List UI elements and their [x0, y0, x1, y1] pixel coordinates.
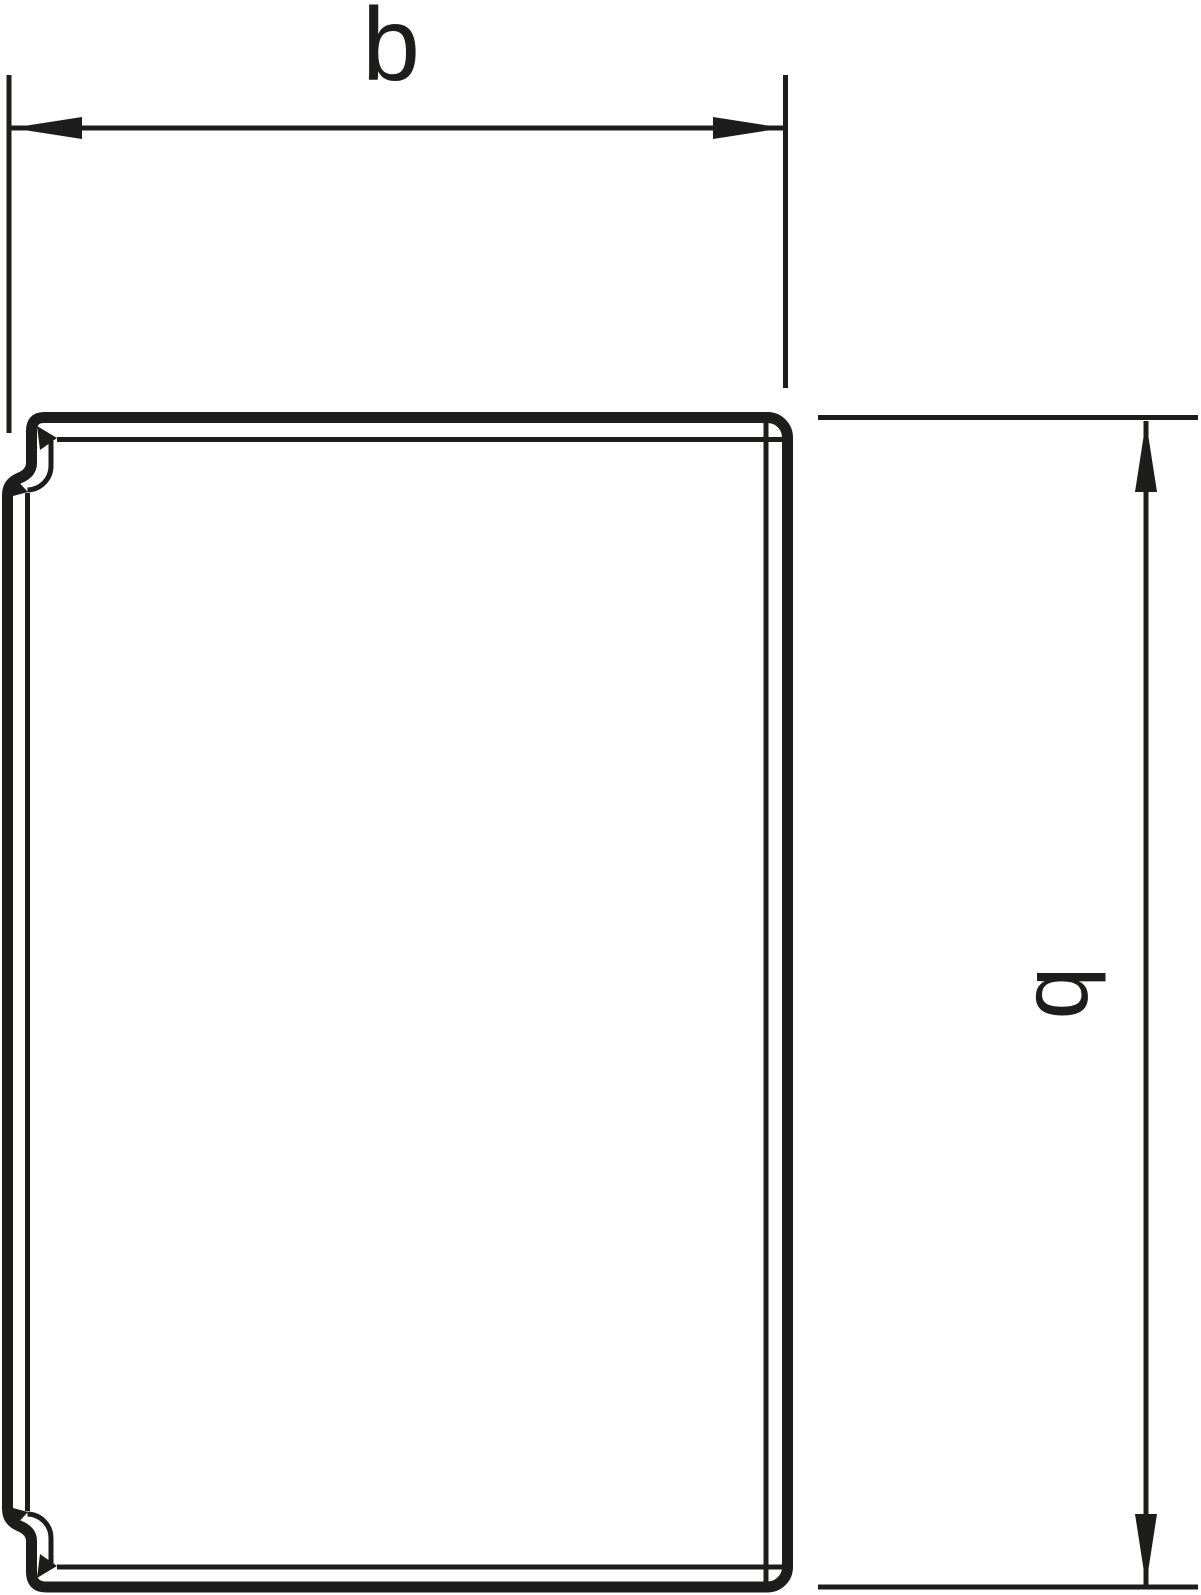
arrowhead-right-icon: [713, 117, 784, 139]
dimension-width: b: [9, 0, 786, 433]
arrowhead-up-icon: [1135, 421, 1157, 492]
profile-section-wedges: [13, 426, 57, 1578]
profile-inner-surfaces: [28, 423, 787, 1586]
wedge-bottom-face-end: [37, 1554, 57, 1578]
arrowhead-left-icon: [11, 117, 82, 139]
height-dimension-label: b: [1016, 967, 1122, 1020]
profile-drawing: b b: [0, 0, 1201, 1595]
wedge-top-face-end: [37, 426, 57, 450]
width-dimension-label: b: [362, 0, 420, 103]
technical-drawing-canvas: b b: [0, 0, 1201, 1595]
profile-outer-contour: [8, 418, 788, 1588]
profile-outline: [8, 418, 788, 1588]
arrowhead-down-icon: [1135, 1514, 1157, 1585]
dimension-height: b: [818, 418, 1198, 1588]
